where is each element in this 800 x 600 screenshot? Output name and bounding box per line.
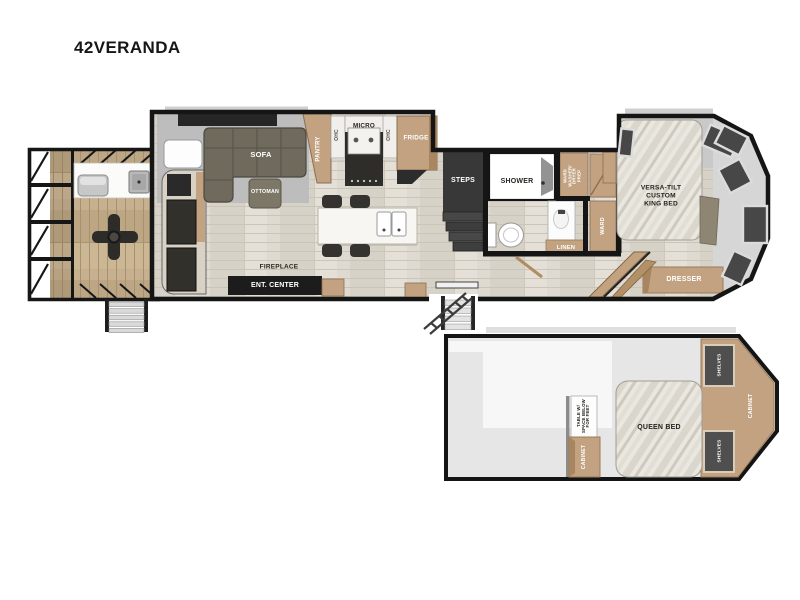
bedside-cabinet bbox=[700, 196, 719, 245]
label-micro: MICRO bbox=[353, 122, 375, 129]
label-fireplace: FIREPLACE bbox=[260, 263, 299, 270]
label-shower: SHOWER bbox=[501, 178, 534, 186]
label-pantry: PANTRY bbox=[316, 136, 323, 161]
label-shelves-bottom: SHELVES bbox=[716, 440, 721, 463]
cabinet-by-ent-center bbox=[322, 279, 344, 296]
label-fridge: FRIDGE bbox=[404, 134, 429, 141]
label-ent-center: ENT. CENTER bbox=[251, 282, 299, 290]
label-ottoman: OTTOMAN bbox=[251, 190, 279, 196]
slideout-window-band bbox=[178, 114, 277, 126]
label-dresser: DRESSER bbox=[666, 276, 701, 284]
label-sofa: SOFA bbox=[250, 151, 271, 159]
floorplan-page: 42VERANDA SOFA OTTOMAN PANTRY OHC MICRO … bbox=[0, 0, 800, 600]
label-loft-table: TABLE W/ SPACE BELOW FOR FEET bbox=[577, 399, 591, 433]
bath-faucet bbox=[558, 210, 565, 214]
label-ohc-left: OHC bbox=[335, 129, 341, 141]
label-steps: STEPS bbox=[451, 177, 475, 185]
loft-section bbox=[446, 327, 777, 479]
floorplan-canvas bbox=[0, 0, 800, 600]
plan-title: 42VERANDA bbox=[74, 38, 181, 58]
label-shelves-top: SHELVES bbox=[716, 354, 721, 377]
veranda-deck bbox=[28, 149, 160, 333]
island-sink-right bbox=[392, 212, 406, 236]
cooktop bbox=[348, 128, 380, 154]
rear-door bbox=[164, 140, 202, 168]
label-loft-cabinet-left: CABINET bbox=[582, 445, 588, 469]
label-loft-cabinet-right: CABINET bbox=[749, 394, 755, 418]
toilet-tank bbox=[487, 223, 496, 247]
label-ohc-right: OHC bbox=[387, 129, 393, 141]
main-floor bbox=[152, 107, 768, 335]
label-king-bed: VERSA-TILT CUSTOM KING BED bbox=[641, 184, 681, 207]
toilet bbox=[499, 223, 524, 247]
bedroom-window-left bbox=[619, 128, 635, 156]
island-sink-left bbox=[377, 212, 391, 236]
veranda-steps bbox=[105, 299, 148, 333]
label-queen-bed: QUEEN BED bbox=[637, 424, 680, 432]
label-ward: WARD bbox=[600, 217, 606, 235]
cabinet-by-door bbox=[405, 283, 426, 298]
entry-door-leaf bbox=[436, 282, 478, 288]
label-ward-washer: WARD WASHER/ DRYER PREP bbox=[564, 165, 583, 186]
cap-window-3 bbox=[743, 206, 767, 243]
label-linen: LINEN bbox=[557, 245, 575, 251]
nightstand bbox=[603, 152, 616, 183]
